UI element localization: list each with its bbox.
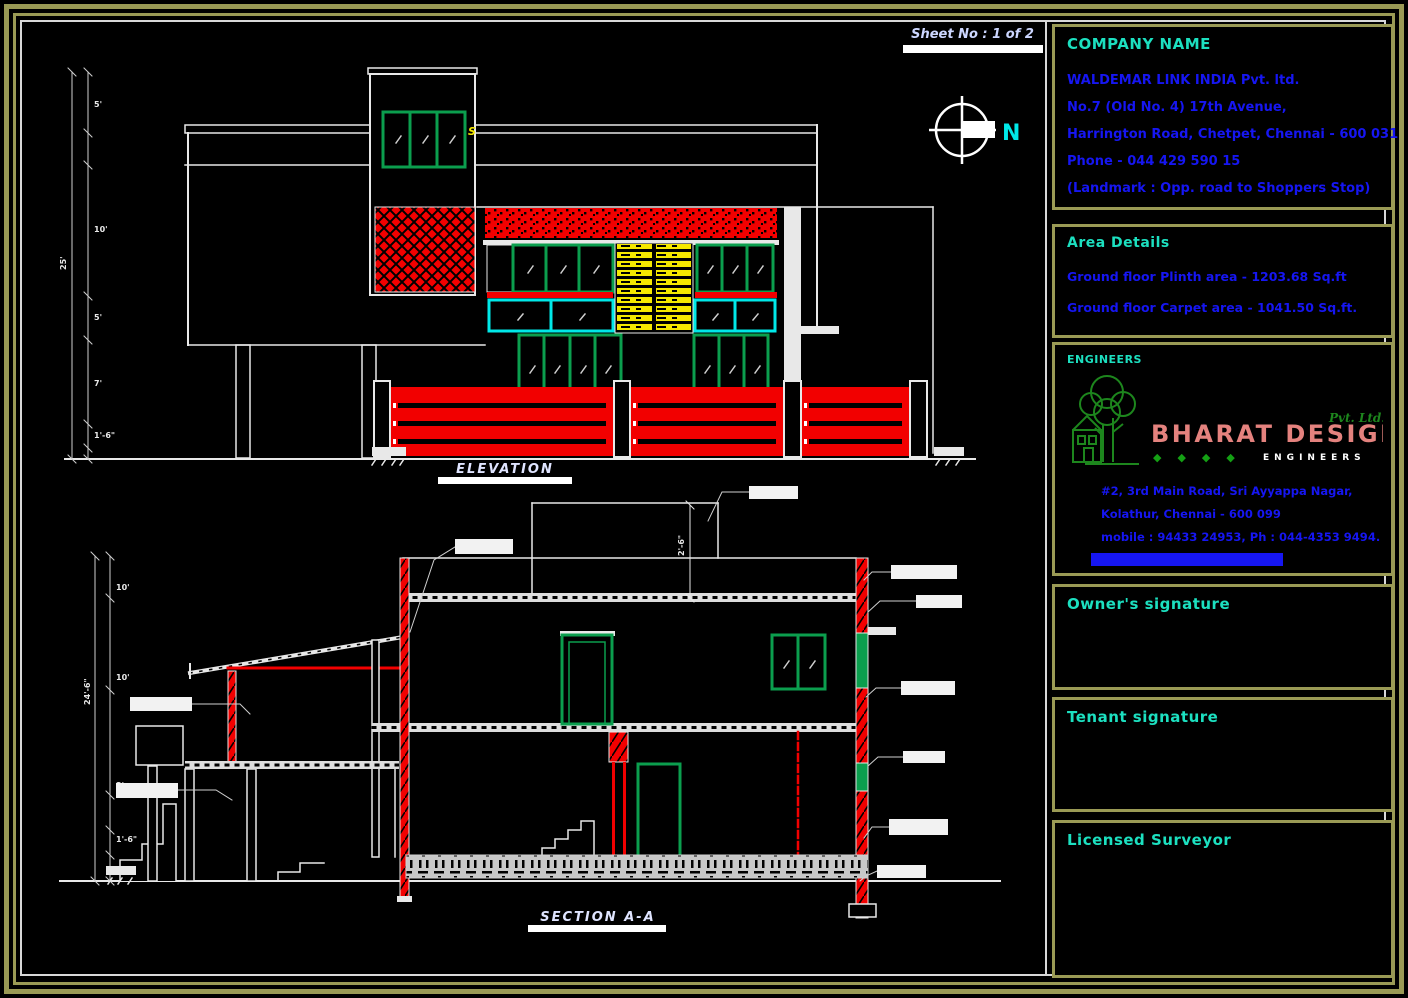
- wall-window-green: [856, 633, 868, 688]
- plinth-band: [406, 855, 868, 878]
- area-details-panel: Area Details Ground floor Plinth area - …: [1052, 224, 1394, 338]
- area-line: Ground floor Plinth area - 1203.68 Sq.ft: [1067, 261, 1379, 292]
- section-wall-left: [400, 558, 409, 898]
- footing: [849, 904, 876, 917]
- dim-label: 2'-6": [677, 535, 686, 556]
- entry-steps: [256, 863, 324, 881]
- company-line: No.7 (Old No. 4) 17th Avenue,: [1067, 94, 1379, 121]
- callout-tag: [116, 783, 178, 798]
- north-label: N: [1002, 121, 1020, 146]
- company-line: Phone - 044 429 590 15: [1067, 148, 1379, 175]
- dim-label: 10': [116, 673, 130, 682]
- section-cut-marker: S: [468, 125, 476, 138]
- licensed-surveyor-panel: Licensed Surveyor: [1052, 820, 1394, 978]
- engineers-heading: ENGINEERS: [1067, 353, 1379, 366]
- callout-tag: [455, 539, 513, 554]
- section-title: SECTION A-A: [540, 910, 655, 925]
- company-heading: COMPANY NAME: [1067, 35, 1379, 53]
- owner-signature-panel: Owner's signature: [1052, 584, 1394, 690]
- licensed-surveyor-heading: Licensed Surveyor: [1067, 831, 1379, 849]
- company-panel: COMPANY NAME WALDEMAR LINK INDIA Pvt. lt…: [1052, 24, 1394, 210]
- company-line: Harrington Road, Chetpet, Chennai - 600 …: [1067, 121, 1379, 148]
- wall: [372, 640, 379, 857]
- callout-tag: [877, 865, 926, 878]
- company-line: (Landmark : Opp. road to Shoppers Stop): [1067, 175, 1379, 202]
- dim-label: 1'-6": [116, 835, 137, 844]
- stair-tower: [368, 68, 477, 295]
- diamond-ornaments: ◆◆◆◆: [1153, 451, 1251, 464]
- callout-tag: [916, 595, 962, 608]
- tree-house-icon: [1073, 376, 1139, 464]
- red-post: [228, 671, 236, 764]
- red-crosshatch-panel: [375, 207, 475, 292]
- callout-labels: [116, 486, 962, 881]
- dim-label: 5': [94, 313, 102, 322]
- brand-tagline: ENGINEERS: [1263, 453, 1366, 463]
- tenant-signature-panel: Tenant signature: [1052, 697, 1394, 812]
- company-line: WALDEMAR LINK INDIA Pvt. ltd.: [1067, 67, 1379, 94]
- red-stripe: [695, 292, 777, 298]
- door-green: [638, 764, 680, 857]
- section-dimension-lines: [91, 552, 114, 885]
- chajja: [868, 627, 896, 635]
- section-drawing: 10' 10' 3' 1'-6" 2' 24'-6" 2'-6": [60, 486, 1000, 932]
- red-stripe: [487, 292, 613, 298]
- gl-marker: [372, 447, 406, 465]
- wall-window-green: [856, 763, 868, 791]
- wall: [247, 769, 256, 881]
- engineers-logo: BHARAT DESIGN Pvt. Ltd. ENGINEERS ◆◆◆◆: [1067, 366, 1383, 476]
- callout-tag: [903, 751, 945, 763]
- compound-fence: [374, 381, 927, 457]
- drawing-sheet: Sheet No : 1 of 2: [0, 0, 1408, 998]
- parapet-band: [185, 125, 817, 133]
- fence-post: [614, 381, 630, 457]
- dim-total-label: 25': [59, 256, 68, 270]
- dim-label: 10': [94, 225, 108, 234]
- floor-slabs: [185, 593, 868, 769]
- gl-marker: [934, 447, 964, 465]
- callout-tag: [130, 697, 192, 711]
- wall: [185, 769, 194, 881]
- owner-signature-heading: Owner's signature: [1067, 595, 1379, 613]
- sunshade: [136, 726, 183, 765]
- white-pier: [784, 207, 801, 382]
- pier: [236, 345, 250, 458]
- callout-tag: [749, 486, 798, 499]
- brand-suffix: Pvt. Ltd.: [1328, 411, 1383, 425]
- area-line: Ground floor Carpet area - 1041.50 Sq.ft…: [1067, 292, 1379, 323]
- ground-floor-interior: [528, 732, 798, 866]
- engineers-address-line: mobile : 94433 24953, Ph : 044-4353 9494…: [1067, 526, 1379, 549]
- elevation-title: ELEVATION: [456, 462, 554, 477]
- fence-post: [910, 381, 927, 457]
- engineers-address-line: #2, 3rd Main Road, Sri Ayyappa Nagar,: [1067, 480, 1379, 503]
- section-title-underline: [528, 925, 666, 932]
- cad-drawing-area: 5' 10' 5' 7' 1'-6" 25': [0, 0, 1046, 998]
- canopy-roof: [190, 637, 403, 764]
- dim-label: 10': [116, 583, 130, 592]
- first-floor-interior: [560, 631, 825, 724]
- area-heading: Area Details: [1067, 235, 1379, 251]
- elevation-drawing: 5' 10' 5' 7' 1'-6" 25': [59, 68, 975, 484]
- ledge: [799, 326, 839, 334]
- dim-label: 5': [94, 100, 102, 109]
- engineers-address-line: Kolathur, Chennai - 600 099: [1067, 503, 1379, 526]
- fence-post: [374, 381, 390, 457]
- callout-tag: [889, 819, 948, 835]
- elevation-dimension-lines: [68, 68, 92, 463]
- red-stipple-band: [485, 208, 777, 238]
- dim-total-label: 24'-6": [83, 678, 92, 705]
- engineers-panel: ENGINEERS BHARAT DESIGN Pvt. Ltd. ENGINE…: [1052, 342, 1394, 576]
- redacted-email-bar: [1091, 553, 1283, 566]
- yellow-louver-panel: [615, 243, 693, 333]
- callout-tag: [891, 565, 957, 579]
- elevation-title-underline: [438, 477, 572, 484]
- dim-label: 7': [94, 379, 102, 388]
- dim-label: 1'-6": [94, 431, 115, 440]
- callout-tag: [901, 681, 955, 695]
- fence-post: [784, 381, 801, 457]
- north-compass: N: [929, 96, 1020, 164]
- tenant-signature-heading: Tenant signature: [1067, 708, 1379, 726]
